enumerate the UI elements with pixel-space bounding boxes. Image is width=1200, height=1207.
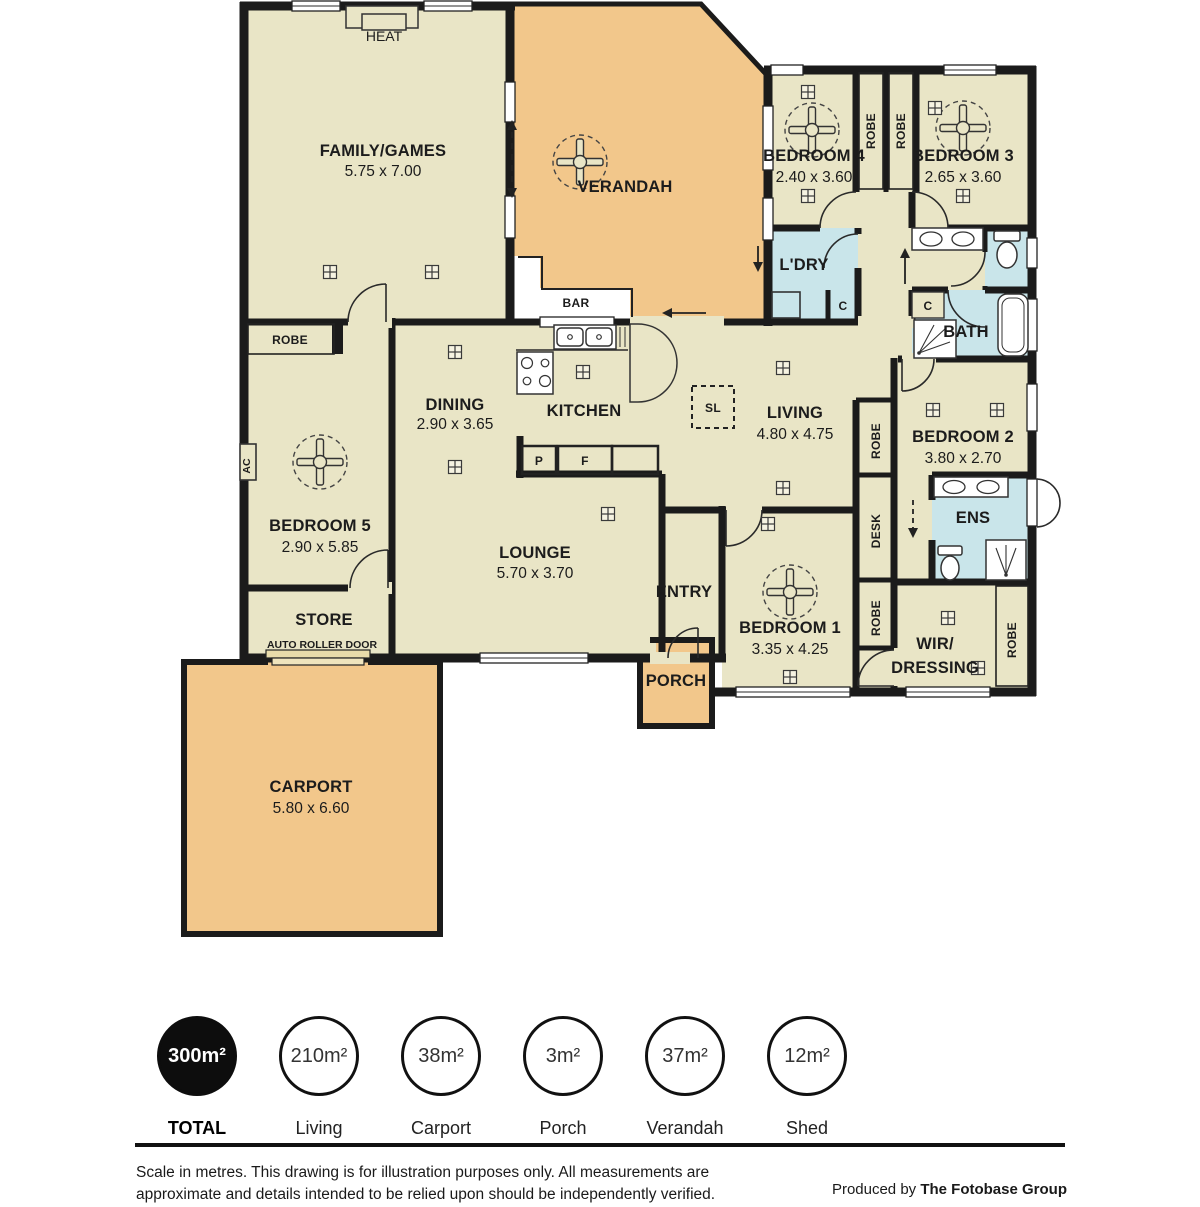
cupboard-label: C — [839, 299, 848, 313]
porch-area-label: Porch — [539, 1118, 586, 1139]
living-label: LIVING — [767, 404, 823, 422]
legend-item-verandah: 37m² Verandah — [624, 1016, 746, 1139]
bedroom2-dims: 3.80 x 2.70 — [925, 450, 1002, 467]
ens-vanity — [934, 477, 1008, 497]
robe-label: ROBE — [894, 113, 908, 149]
bedroom2-label: BEDROOM 2 — [912, 428, 1014, 446]
legend-item-living: 210m² Living — [258, 1016, 380, 1139]
bedroom5-dims: 2.90 x 5.85 — [282, 539, 359, 556]
bath-label: BATH — [943, 323, 988, 341]
carport-dims: 5.80 x 6.60 — [273, 800, 350, 817]
disclaimer-line2: approximate and details intended to be r… — [136, 1184, 715, 1206]
lounge-dims: 5.70 x 3.70 — [497, 565, 574, 582]
bedroom4-dims: 2.40 x 3.60 — [776, 169, 853, 186]
skylight-label: SL — [705, 401, 721, 415]
bath-vanity — [912, 228, 983, 250]
bar-label: BAR — [563, 296, 590, 310]
robe-label: ROBE — [272, 333, 308, 347]
robe-label: ROBE — [864, 113, 878, 149]
living-area-label: Living — [295, 1118, 342, 1139]
dining-label: DINING — [426, 396, 485, 414]
ensuite-outdoor-door — [1037, 479, 1060, 527]
robe-label: ROBE — [1005, 622, 1019, 658]
pantry-label: P — [535, 454, 543, 468]
desk-label: DESK — [869, 514, 883, 549]
kitchen-label: KITCHEN — [547, 402, 622, 420]
carport-area-label: Carport — [411, 1118, 471, 1139]
store-label: STORE — [295, 611, 353, 629]
legend-item-carport: 38m² Carport — [380, 1016, 502, 1139]
footer-divider — [135, 1143, 1065, 1147]
bedroom1-label: BEDROOM 1 — [739, 619, 841, 637]
roller-door — [266, 650, 370, 665]
bedroom1-floor — [722, 510, 868, 692]
shed-area-circle: 12m² — [767, 1016, 847, 1096]
floor-plan: HEAT FAMILY/GAMES 5.75 x 7.00 VERANDAH B… — [0, 0, 1200, 1000]
producer-credit: Produced by The Fotobase Group — [832, 1181, 1067, 1198]
shed-area-label: Shed — [786, 1118, 828, 1139]
living-dims: 4.80 x 4.75 — [757, 426, 834, 443]
producer-name: The Fotobase Group — [920, 1181, 1067, 1198]
area-legend: 300m² TOTAL 210m² Living 38m² Carport 3m… — [136, 1016, 868, 1139]
left-column-floor — [244, 322, 392, 658]
bedroom1-dims: 3.35 x 4.25 — [752, 641, 829, 658]
legend-item-porch: 3m² Porch — [502, 1016, 624, 1139]
disclaimer-text: Scale in metres. This drawing is for ill… — [136, 1162, 715, 1207]
carport-area-circle: 38m² — [401, 1016, 481, 1096]
fridge-label: F — [581, 454, 589, 468]
living-area-circle: 210m² — [279, 1016, 359, 1096]
legend-item-total: 300m² TOTAL — [136, 1016, 258, 1139]
laundry-fixtures — [772, 292, 800, 318]
total-area-circle: 300m² — [157, 1016, 237, 1096]
robe-label: ROBE — [869, 600, 883, 636]
entry-label: ENTRY — [656, 583, 712, 601]
wir-label: WIR/ — [916, 635, 954, 653]
porch-label: PORCH — [646, 672, 707, 690]
legend-item-shed: 12m² Shed — [746, 1016, 868, 1139]
bedroom5-label: BEDROOM 5 — [269, 517, 371, 535]
robe-label: ROBE — [869, 423, 883, 459]
verandah-floor — [512, 2, 766, 322]
total-area-label: TOTAL — [168, 1118, 226, 1139]
roller-door-label: AUTO ROLLER DOOR — [267, 639, 377, 651]
disclaimer-line1: Scale in metres. This drawing is for ill… — [136, 1162, 715, 1184]
verandah-label: VERANDAH — [577, 178, 672, 196]
washer — [772, 292, 800, 318]
heat-unit — [346, 6, 418, 30]
lounge-label: LOUNGE — [499, 544, 571, 562]
family-label: FAMILY/GAMES — [320, 142, 446, 160]
verandah-area-circle: 37m² — [645, 1016, 725, 1096]
ac-label: AC — [241, 458, 253, 474]
ensuite-label: ENS — [956, 509, 991, 527]
carport-label: CARPORT — [270, 778, 353, 796]
carport-floor — [184, 662, 440, 934]
bedroom4-label: BEDROOM 4 — [763, 147, 865, 165]
cupboard-label: C — [924, 299, 933, 313]
bedroom3-dims: 2.65 x 3.60 — [925, 169, 1002, 186]
family-dims: 5.75 x 7.00 — [345, 163, 422, 180]
produced-by-text: Produced by — [832, 1181, 920, 1198]
porch-area-circle: 3m² — [523, 1016, 603, 1096]
heat-label: HEAT — [366, 28, 403, 44]
laundry-label: L'DRY — [779, 256, 828, 274]
dining-dims: 2.90 x 3.65 — [417, 416, 494, 433]
wir-label2: DRESSING — [891, 659, 979, 677]
stove — [517, 352, 553, 394]
bedroom3-label: BEDROOM 3 — [912, 147, 1014, 165]
verandah-area-label: Verandah — [646, 1118, 723, 1139]
ens-shower — [986, 540, 1026, 580]
